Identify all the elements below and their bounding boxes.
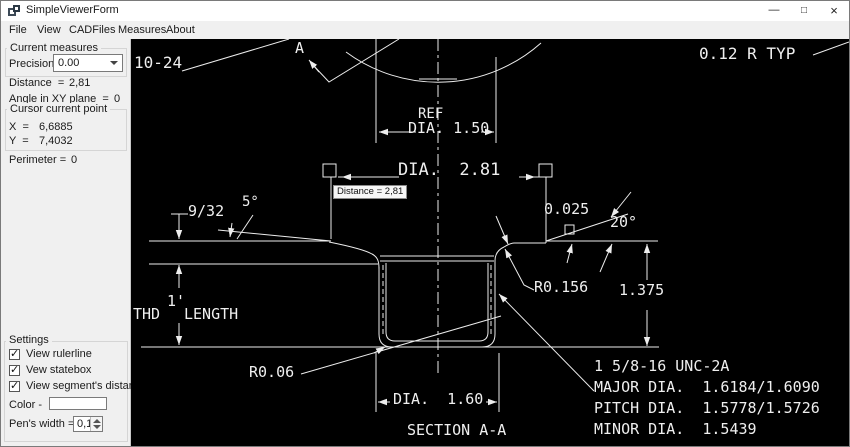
menu-about[interactable]: About (164, 21, 197, 39)
measures-panel: Current measures Precision = 0.00 Distan… (1, 39, 131, 447)
radius-0156: R0.156 (534, 280, 588, 296)
perimeter-label: Perimeter = (9, 154, 66, 166)
precision-value: 0.00 (58, 57, 79, 69)
thread-spec-line1: 1 5/8-16 UNC-2A (594, 359, 729, 375)
cursor-x-label: X = (9, 121, 29, 133)
dim-0025: 0.025 (544, 202, 589, 218)
check-icon: ✓ (10, 347, 19, 360)
check-icon: ✓ (10, 363, 19, 376)
distance-tooltip: Distance = 2,81 (333, 185, 407, 199)
dim-1375: 1.375 (619, 283, 664, 299)
step-up-icon[interactable] (93, 419, 101, 423)
menu-measures[interactable]: Measures (116, 21, 168, 39)
thd-length-value: 1' (167, 294, 185, 310)
view-rulerline-label: View rulerline (26, 348, 92, 360)
minimize-button[interactable]: — (759, 1, 789, 21)
view-segments-distance-label: View segment's distance (26, 380, 147, 392)
distance-label: Distance = (9, 77, 64, 89)
maximize-button[interactable]: □ (789, 1, 819, 21)
view-segments-distance-checkbox[interactable]: ✓ (9, 381, 20, 392)
diameter-160-dim: DIA. 1.60 (393, 392, 483, 408)
thread-spec-line2: MAJOR DIA. 1.6184/1.6090 (594, 380, 820, 396)
distance-value: 2,81 (69, 77, 90, 89)
thread-callout-10-24: 10-24 (134, 55, 182, 72)
angle-20-deg: 20° (610, 215, 637, 231)
cursor-point-label: Cursor current point (7, 103, 110, 115)
view-statebox-label: Vew statebox (26, 364, 91, 376)
ref-diameter-dim: DIA. 1.50 (408, 121, 489, 137)
view-rulerline-checkbox[interactable]: ✓ (9, 349, 20, 360)
current-measures-label: Current measures (7, 42, 101, 54)
radius-typ-note: 0.12 R TYP (699, 46, 795, 63)
view-statebox-checkbox[interactable]: ✓ (9, 365, 20, 376)
pen-width-label: Pen's width = (9, 418, 74, 430)
menu-cadfiles[interactable]: CADFiles (67, 21, 117, 39)
cursor-y-label: Y = (9, 135, 29, 147)
diameter-281-dim: DIA. 2.81 (398, 162, 500, 180)
section-title: SECTION A-A (407, 423, 506, 439)
stepper-buttons[interactable] (90, 417, 102, 431)
menu-file[interactable]: File (7, 21, 29, 39)
thread-spec-line4: MINOR DIA. 1.5439 (594, 422, 757, 438)
length-word: LENGTH (184, 307, 238, 323)
window-title: SimpleViewerForm (26, 4, 119, 16)
check-icon: ✓ (10, 379, 19, 392)
app-icon (8, 5, 20, 17)
radius-006: R0.06 (249, 365, 294, 381)
menu-bar: File View CADFiles Measures About (1, 21, 849, 39)
settings-label: Settings (6, 334, 52, 346)
thread-spec-line3: PITCH DIA. 1.5778/1.5726 (594, 401, 820, 417)
app-icon-square-front (13, 5, 20, 12)
thd-word: THD (133, 307, 160, 323)
color-label: Color - (9, 399, 42, 411)
dim-9-32: 9/32 (188, 204, 224, 220)
perimeter-value: 0 (71, 154, 77, 166)
step-down-icon[interactable] (93, 425, 101, 429)
angle-5-deg: 5° (242, 195, 259, 210)
part-section-geometry (141, 39, 849, 412)
cursor-x-value: 6,6885 (39, 121, 73, 133)
title-bar[interactable]: SimpleViewerForm — □ × (1, 1, 849, 21)
app-window: SimpleViewerForm — □ × File View CADFile… (0, 0, 850, 447)
color-swatch-button[interactable] (49, 397, 107, 410)
drawing-canvas[interactable]: A 10-24 0.12 R TYP REF DIA. 1.50 DIA. 2.… (131, 39, 849, 446)
close-button[interactable]: × (819, 1, 849, 21)
cursor-y-value: 7,4032 (39, 135, 73, 147)
section-marker-a: A (295, 41, 304, 57)
precision-combobox[interactable]: 0.00 (53, 54, 123, 72)
menu-view[interactable]: View (35, 21, 63, 39)
angle-value: 0 (114, 93, 120, 105)
pen-width-stepper[interactable]: 0,1 (73, 416, 103, 432)
chevron-down-icon (110, 61, 118, 65)
